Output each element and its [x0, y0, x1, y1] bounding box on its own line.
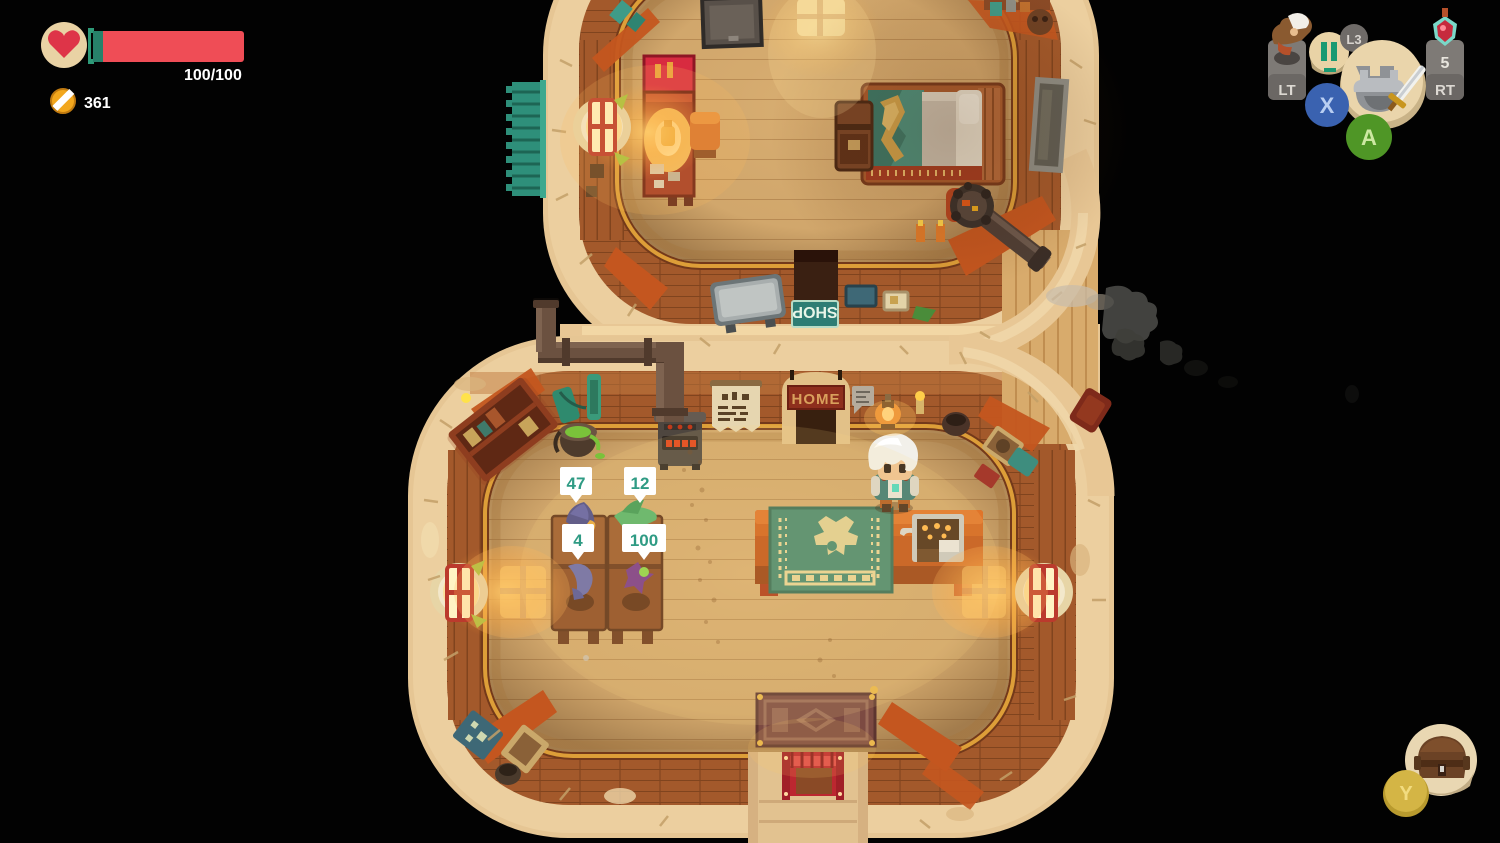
svg-text:LT: LT [1278, 82, 1295, 99]
svg-text:361: 361 [84, 95, 111, 112]
svg-text:L3: L3 [1346, 32, 1361, 47]
svg-text:12: 12 [631, 474, 650, 493]
svg-text:HOME: HOME [792, 391, 841, 408]
svg-text:X: X [1320, 93, 1335, 118]
svg-text:100/100: 100/100 [184, 67, 242, 84]
svg-text:Y: Y [1399, 783, 1413, 805]
svg-text:47: 47 [567, 474, 586, 493]
svg-text:5: 5 [1441, 55, 1450, 72]
svg-text:4: 4 [573, 531, 583, 550]
svg-text:RT: RT [1435, 82, 1455, 99]
svg-text:A: A [1361, 125, 1377, 150]
svg-text:100: 100 [630, 531, 658, 550]
svg-text:SHOP: SHOP [792, 303, 838, 320]
